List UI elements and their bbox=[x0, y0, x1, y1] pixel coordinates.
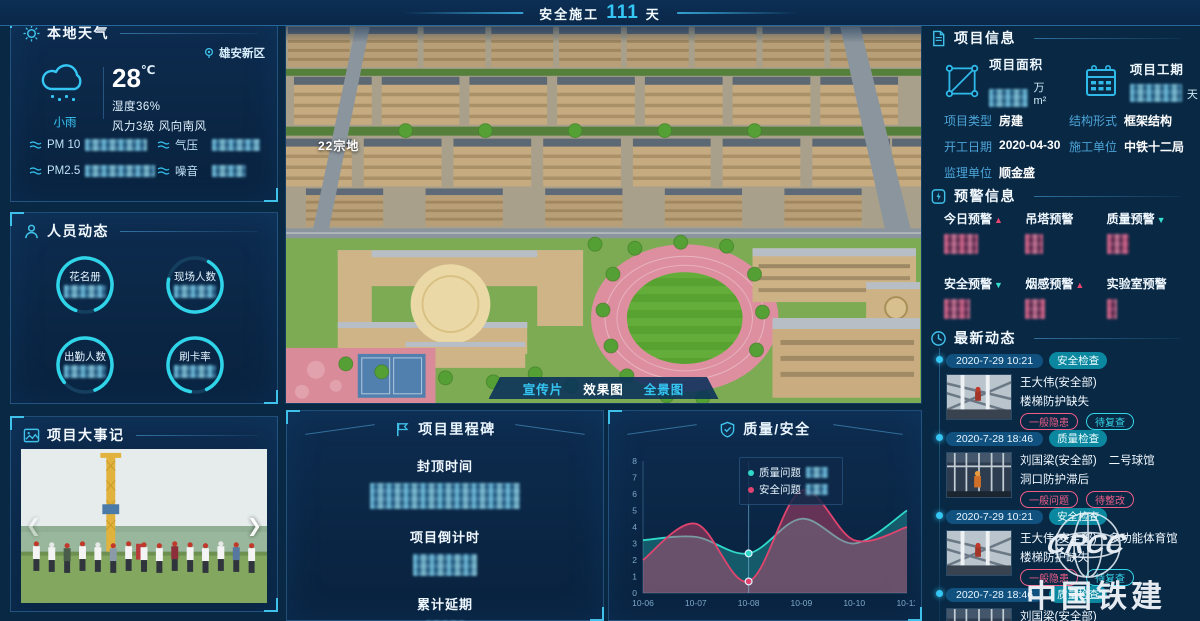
timeline-dot-icon bbox=[936, 356, 943, 363]
steel-structure-photo bbox=[947, 375, 1011, 419]
value-redacted bbox=[64, 285, 106, 298]
dashboard-root: { "header": { "safety_label": "安全施工", "d… bbox=[0, 0, 1200, 621]
trend-arrow-icon: ▼ bbox=[1157, 215, 1166, 225]
project-field: 项目类型 房建 bbox=[944, 112, 1069, 129]
shield-check-icon bbox=[719, 421, 736, 438]
noise-icon bbox=[157, 165, 170, 178]
svg-text:5: 5 bbox=[632, 506, 637, 516]
svg-text:10-07: 10-07 bbox=[685, 598, 707, 608]
warnings-panel: 预警信息 今日预警▲ 吊塔预警 质量预警▼ 安全预警▼ 烟感预警▲ 实验室预警 bbox=[930, 178, 1192, 316]
trend-arrow-icon: ▲ bbox=[1075, 280, 1084, 290]
warning-item: 安全预警▼ bbox=[944, 275, 1025, 324]
trend-arrow-icon: ▲ bbox=[994, 215, 1003, 225]
news-photo-thumbnail bbox=[946, 374, 1012, 420]
weather-panel: 本地天气 雄安新区 小雨 28℃ 湿度36% 风力3级 风向南风 bbox=[10, 14, 278, 202]
news-photo-thumbnail bbox=[946, 608, 1012, 621]
personnel-header: 人员动态 bbox=[11, 213, 277, 246]
safety-series-dot bbox=[748, 487, 754, 493]
news-tag: 一般隐患 bbox=[1020, 569, 1078, 586]
svg-text:2: 2 bbox=[632, 555, 637, 565]
warnings-header: 预警信息 bbox=[930, 178, 1192, 211]
timeline-dot-icon bbox=[936, 434, 943, 441]
personnel-ring: 出勤人数 bbox=[51, 331, 119, 399]
duration-unit: 天 bbox=[1187, 86, 1198, 102]
news-photo-thumbnail bbox=[946, 530, 1012, 576]
value-redacted bbox=[174, 365, 216, 378]
project-stats: 项目面积 万m² 项目工期 天 bbox=[944, 54, 1186, 107]
svg-text:6: 6 bbox=[632, 489, 637, 499]
value-redacted bbox=[1107, 234, 1129, 254]
news-tag: 一般问题 bbox=[1020, 491, 1078, 508]
wind-info: 风力3级 风向南风 bbox=[112, 118, 207, 134]
svg-text:10-09: 10-09 bbox=[791, 598, 813, 608]
news-date: 2020-7-28 18:46 bbox=[946, 432, 1043, 446]
news-person: 刘国梁(安全部) bbox=[1020, 608, 1097, 621]
carousel-next-button[interactable]: ❯ bbox=[247, 516, 262, 537]
timeline-dot-icon bbox=[936, 590, 943, 597]
safety-days-unit: 天 bbox=[646, 4, 661, 23]
news-issue: 楼梯防护缺失 bbox=[1020, 393, 1192, 409]
news-tag: 待复查 bbox=[1086, 569, 1134, 586]
news-date: 2020-7-28 18:46 bbox=[946, 588, 1043, 602]
news-title: 最新动态 bbox=[954, 328, 1016, 348]
svg-text:10-11: 10-11 bbox=[896, 598, 915, 608]
timeline-dot-icon bbox=[936, 512, 943, 519]
value-redacted bbox=[85, 165, 155, 177]
temperature: 28℃ bbox=[112, 63, 207, 94]
project-fields: 项目类型 房建 结构形式 框架结构 开工日期 2020-04-30 施工单位 中… bbox=[944, 112, 1188, 181]
dust-icon bbox=[29, 139, 42, 152]
area-unit: 万m² bbox=[1033, 79, 1054, 107]
quality-title: 质量/安全 bbox=[743, 419, 810, 439]
news-tag: 一般隐患 bbox=[1020, 413, 1078, 430]
value-redacted bbox=[1130, 84, 1182, 102]
svg-text:8: 8 bbox=[632, 456, 637, 466]
milestone-delay: 累计延期 bbox=[287, 594, 603, 621]
humidity: 湿度36% bbox=[112, 98, 207, 114]
weather-metrics: PM 10 气压 PM2.5 噪音 bbox=[29, 137, 267, 179]
location-label: 雄安新区 bbox=[219, 45, 265, 61]
milestone-header: 项目里程碑 bbox=[287, 416, 603, 442]
temp-unit: ℃ bbox=[141, 63, 156, 77]
svg-text:10-10: 10-10 bbox=[843, 598, 865, 608]
clock-icon bbox=[930, 330, 947, 347]
quality-safety-panel: 质量/安全 87654321010-0610-0710-0810-0910-10… bbox=[608, 410, 922, 621]
weather-title: 本地天气 bbox=[47, 23, 109, 43]
warning-item: 吊塔预警 bbox=[1025, 210, 1106, 259]
topping-out-ceremony-photo bbox=[21, 449, 267, 603]
milestone-topping-time: 封顶时间 bbox=[287, 456, 603, 514]
personnel-ring: 花名册 bbox=[51, 251, 119, 319]
news-timeline: 2020-7-29 10:21 安全检查 bbox=[930, 348, 1192, 621]
value-redacted bbox=[212, 139, 260, 151]
news-entry[interactable]: 2020-7-29 10:21 安全检查 bbox=[946, 508, 1192, 584]
personnel-ring: 刷卡率 bbox=[161, 331, 229, 399]
svg-text:0: 0 bbox=[632, 588, 637, 598]
project-area-stat: 项目面积 万m² bbox=[944, 54, 1055, 107]
calendar-icon bbox=[1081, 61, 1121, 101]
value-redacted bbox=[85, 139, 147, 151]
tooltip-safety-row: 安全问题 bbox=[748, 482, 834, 497]
news-entry[interactable]: 2020-7-28 18:46 质量检查 bbox=[946, 430, 1192, 506]
events-header: 项目大事记 bbox=[11, 417, 277, 450]
milestone-photos-panel: 项目大事记 ❮ ❯ bbox=[10, 416, 278, 612]
value-redacted bbox=[1025, 299, 1045, 319]
news-tag: 待复查 bbox=[1086, 413, 1134, 430]
news-category-badge: 安全检查 bbox=[1049, 352, 1107, 369]
weather-condition: 小雨 bbox=[29, 114, 101, 130]
svg-text:4: 4 bbox=[632, 522, 637, 532]
alert-shield-icon bbox=[930, 188, 947, 205]
quality-header: 质量/安全 bbox=[609, 416, 921, 442]
news-date: 2020-7-29 10:21 bbox=[946, 510, 1043, 524]
person-icon bbox=[23, 223, 40, 240]
view-tab-panorama[interactable]: 全景图 bbox=[644, 379, 685, 398]
parcel-label: 22宗地 bbox=[318, 137, 359, 154]
view-mode-tabs: 宣传片效果图全景图 bbox=[489, 377, 719, 399]
campus-3d-illustration bbox=[286, 13, 921, 404]
indoor-scaffold-photo bbox=[947, 609, 1011, 621]
timeline-rail bbox=[939, 348, 940, 621]
weather-current: 小雨 28℃ 湿度36% 风力3级 风向南风 bbox=[29, 63, 207, 134]
carousel-prev-button[interactable]: ❮ bbox=[26, 516, 41, 537]
location-badge: 雄安新区 bbox=[203, 45, 265, 61]
milestone-panel: 项目里程碑 封顶时间 项目倒计时 累计延期 bbox=[286, 410, 604, 621]
dust-icon bbox=[29, 165, 42, 178]
quality-series-label: 质量问题 bbox=[759, 465, 801, 480]
svg-text:3: 3 bbox=[632, 539, 637, 549]
svg-text:7: 7 bbox=[632, 473, 637, 483]
svg-text:10-08: 10-08 bbox=[738, 598, 760, 608]
view-tab-render[interactable]: 效果图 bbox=[583, 379, 624, 398]
flag-icon bbox=[394, 421, 411, 438]
news-photo-thumbnail bbox=[946, 452, 1012, 498]
personnel-panel: 人员动态 花名册 现场人数 出勤人数 bbox=[10, 212, 278, 404]
personnel-rings: 花名册 现场人数 出勤人数 刷卡率 bbox=[11, 243, 279, 403]
value-redacted bbox=[944, 299, 970, 319]
safety-series-label: 安全问题 bbox=[759, 482, 801, 497]
view-tab-promo[interactable]: 宣传片 bbox=[523, 379, 564, 398]
chart-tooltip: 质量问题 安全问题 bbox=[739, 457, 843, 505]
news-issue: 楼梯防护缺失 bbox=[1020, 549, 1192, 565]
rain-cloud-icon bbox=[39, 63, 91, 107]
news-entry[interactable]: 2020-7-28 18:46 质量检查 bbox=[946, 586, 1192, 621]
personnel-title: 人员动态 bbox=[47, 221, 109, 241]
trend-arrow-icon: ▼ bbox=[994, 280, 1003, 290]
milestone-countdown: 项目倒计时 bbox=[287, 527, 603, 581]
value-redacted bbox=[174, 285, 216, 298]
project-info-title: 项目信息 bbox=[954, 28, 1016, 48]
news-person: 刘国梁(安全部) bbox=[1020, 452, 1097, 468]
warning-item: 实验室预警 bbox=[1107, 275, 1188, 324]
personnel-ring: 现场人数 bbox=[161, 251, 229, 319]
location-pin-icon bbox=[203, 47, 215, 59]
news-panel: 最新动态 2020-7-29 10:21 安全检查 bbox=[930, 320, 1192, 621]
photo-icon bbox=[23, 427, 40, 444]
warning-item: 今日预警▲ bbox=[944, 210, 1025, 259]
news-category-badge: 质量检查 bbox=[1049, 430, 1107, 447]
value-redacted bbox=[989, 89, 1028, 107]
project-duration-stat: 项目工期 天 bbox=[1081, 54, 1198, 107]
news-category-badge: 安全检查 bbox=[1049, 508, 1107, 525]
news-location: 多功能体育馆 bbox=[1109, 530, 1178, 546]
milestone-title: 项目里程碑 bbox=[418, 419, 496, 439]
news-entry[interactable]: 2020-7-29 10:21 安全检查 bbox=[946, 352, 1192, 428]
value-redacted bbox=[806, 484, 828, 495]
area-icon bbox=[944, 61, 980, 101]
warnings-grid: 今日预警▲ 吊塔预警 质量预警▼ 安全预警▼ 烟感预警▲ 实验室预警 bbox=[944, 210, 1188, 324]
crowd-figures bbox=[33, 541, 255, 573]
value-redacted bbox=[944, 234, 978, 254]
project-field: 施工单位 中铁十二局 bbox=[1069, 138, 1188, 155]
value-redacted bbox=[64, 365, 106, 378]
safety-label: 安全施工 bbox=[539, 4, 599, 23]
tooltip-quality-row: 质量问题 bbox=[748, 465, 834, 480]
quality-safety-chart[interactable]: 87654321010-0610-0710-0810-0910-1010-11 … bbox=[617, 453, 915, 617]
project-info-panel: 项目信息 项目面积 万m² 项目工期 天 项目类型 房建 bbox=[930, 20, 1192, 172]
value-redacted bbox=[212, 165, 246, 177]
events-title: 项目大事记 bbox=[47, 425, 125, 445]
svg-text:1: 1 bbox=[632, 572, 637, 582]
top-header-bar: 安全施工 111 天 bbox=[0, 0, 1200, 26]
warnings-title: 预警信息 bbox=[954, 186, 1016, 206]
value-redacted bbox=[413, 554, 477, 576]
news-tag: 待整改 bbox=[1086, 491, 1134, 508]
value-redacted bbox=[1025, 234, 1043, 254]
weather-metric: PM2.5 bbox=[29, 163, 157, 179]
news-issue: 洞口防护滞后 bbox=[1020, 471, 1192, 487]
news-person: 王大伟(安全部) bbox=[1020, 374, 1097, 390]
value-redacted bbox=[1107, 299, 1117, 319]
news-person: 王大伟(安全部) bbox=[1020, 530, 1097, 546]
weather-metric: 气压 bbox=[157, 137, 267, 153]
news-date: 2020-7-29 10:21 bbox=[946, 354, 1043, 368]
safety-days-count: 111 bbox=[606, 2, 639, 24]
project-field: 结构形式 框架结构 bbox=[1069, 112, 1188, 129]
quality-series-dot bbox=[748, 470, 754, 476]
news-location: 二号球馆 bbox=[1109, 452, 1155, 468]
document-icon bbox=[930, 30, 947, 47]
weather-metric: 噪音 bbox=[157, 163, 267, 179]
steel-structure-photo bbox=[947, 531, 1011, 575]
svg-text:10-06: 10-06 bbox=[632, 598, 654, 608]
indoor-scaffold-photo bbox=[947, 453, 1011, 497]
value-redacted bbox=[806, 467, 828, 478]
events-photo-carousel[interactable]: ❮ ❯ bbox=[21, 449, 267, 603]
pressure-icon bbox=[157, 139, 170, 152]
safety-days-title: 安全施工 111 天 bbox=[513, 0, 687, 26]
value-redacted bbox=[370, 483, 520, 509]
weather-metric: PM 10 bbox=[29, 137, 157, 153]
project-field: 开工日期 2020-04-30 bbox=[944, 138, 1069, 155]
aerial-render-view[interactable]: 22宗地 宣传片效果图全景图 bbox=[285, 12, 922, 404]
warning-item: 烟感预警▲ bbox=[1025, 275, 1106, 324]
news-category-badge: 质量检查 bbox=[1049, 586, 1107, 603]
warning-item: 质量预警▼ bbox=[1107, 210, 1188, 259]
sun-icon bbox=[23, 25, 40, 42]
